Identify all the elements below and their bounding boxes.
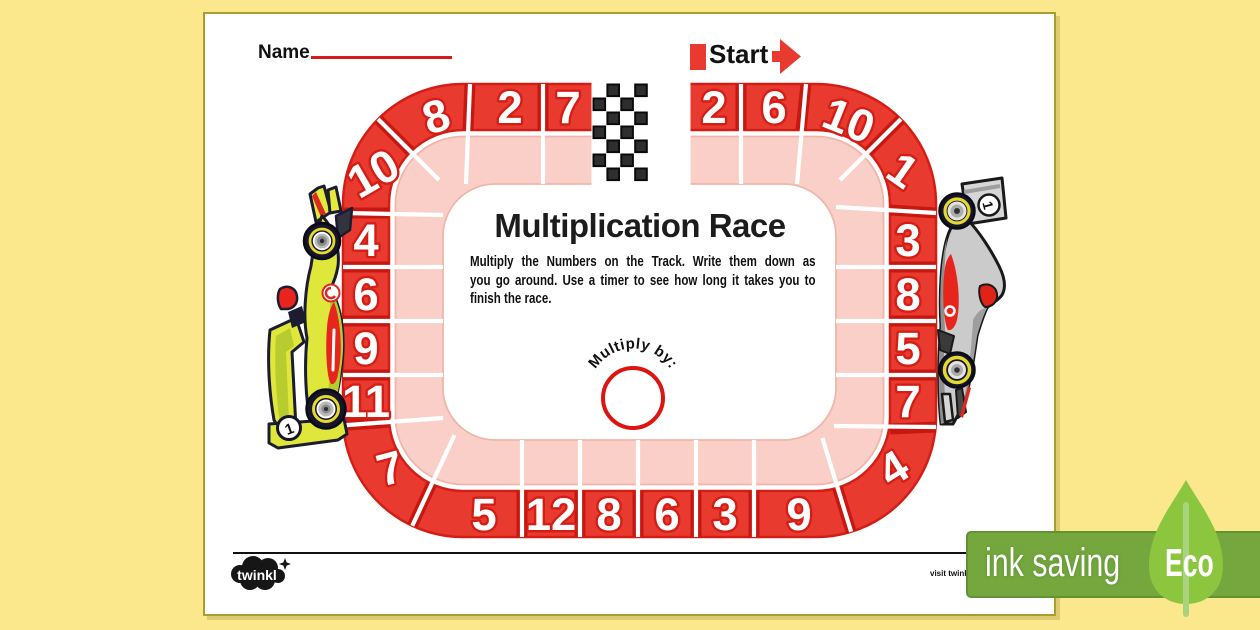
svg-text:9: 9 (786, 489, 811, 540)
svg-text:8: 8 (895, 269, 920, 320)
svg-text:6: 6 (654, 489, 679, 540)
svg-text:5: 5 (895, 323, 920, 374)
svg-text:7: 7 (555, 82, 580, 133)
svg-text:8: 8 (596, 489, 621, 540)
svg-text:11: 11 (342, 376, 390, 427)
svg-text:2: 2 (701, 82, 726, 133)
svg-text:5: 5 (471, 489, 496, 540)
svg-text:4: 4 (353, 215, 379, 266)
svg-text:6: 6 (353, 269, 378, 320)
svg-text:twinkl: twinkl (237, 567, 277, 583)
svg-text:2: 2 (497, 82, 522, 133)
svg-text:6: 6 (761, 82, 786, 133)
svg-text:12: 12 (526, 489, 577, 540)
svg-text:3: 3 (712, 489, 737, 540)
svg-text:9: 9 (353, 323, 378, 374)
svg-text:7: 7 (895, 376, 920, 427)
svg-text:3: 3 (895, 215, 920, 266)
